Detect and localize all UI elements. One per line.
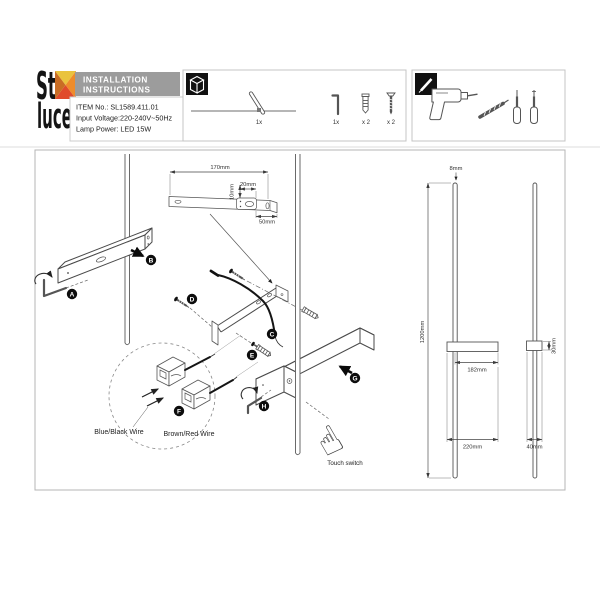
wall-lamp-rod-main xyxy=(296,154,301,455)
svg-text:D: D xyxy=(190,296,195,303)
wall-anchor-part-icon xyxy=(362,94,369,113)
step-marker-h: H xyxy=(259,401,269,411)
touch-switch-label: Touch switch xyxy=(327,460,363,467)
step-marker-c: C xyxy=(267,329,277,339)
header-line2: INSTRUCTIONS xyxy=(83,86,150,95)
svg-text:E: E xyxy=(250,352,255,359)
included-parts-box: 1x 1x x 2 x 2 xyxy=(183,70,406,141)
dim-40mm: 40mm xyxy=(526,445,542,451)
dim-20mm: 20mm xyxy=(240,182,256,188)
dim-50mm: 50mm xyxy=(259,220,275,226)
title-block: INSTALLATION INSTRUCTIONS ITEM No.: SL15… xyxy=(70,72,186,141)
dim-182mm: 182mm xyxy=(467,368,487,374)
item-number: ITEM No.: SL1589.411.01 xyxy=(76,103,159,112)
step-marker-a: A xyxy=(67,289,77,299)
lamp-power: Lamp Power: LED 15W xyxy=(76,125,151,134)
screw-qty: x 2 xyxy=(387,120,396,126)
fixture-qty: 1x xyxy=(256,120,262,126)
instruction-sheet: St luce INSTALLATION INSTRUCTIONS ITEM N… xyxy=(0,0,600,600)
svg-text:F: F xyxy=(177,408,181,415)
arm-side-view xyxy=(527,341,543,351)
sheet-graphics: St luce INSTALLATION INSTRUCTIONS ITEM N… xyxy=(0,0,600,600)
svg-text:G: G xyxy=(352,375,357,382)
dim-220mm: 220mm xyxy=(463,445,483,451)
svg-text:C: C xyxy=(270,331,275,338)
rod-side-view xyxy=(533,183,537,478)
step-marker-b: B xyxy=(146,255,156,265)
dim-1200mm: 1200mm xyxy=(420,321,426,344)
rod-front-view xyxy=(453,183,457,478)
svg-text:H: H xyxy=(262,403,267,410)
brown-wire-label: Brown/Red Wire xyxy=(164,431,215,438)
anchor-qty: x 2 xyxy=(362,120,371,126)
dim-10mm: 10mm xyxy=(230,184,236,200)
arm-front-view xyxy=(447,342,498,352)
step-marker-f: F xyxy=(174,406,184,416)
blue-wire-label: Blue/Black Wire xyxy=(94,429,144,436)
dim-170mm: 170mm xyxy=(210,165,230,171)
dim-30mm: 30mm xyxy=(552,338,558,354)
step-marker-d: D xyxy=(187,294,197,304)
required-tools-box xyxy=(412,70,565,141)
svg-text:A: A xyxy=(70,291,75,298)
step-marker-g: G xyxy=(350,373,360,383)
input-voltage: Input Voltage:220-240V~50Hz xyxy=(76,114,173,123)
dim-8mm: 8mm xyxy=(450,166,463,172)
logo-word-bottom: luce xyxy=(37,97,72,137)
logo-square-icon xyxy=(55,71,76,99)
svg-text:B: B xyxy=(149,257,154,264)
allen-key-qty: 1x xyxy=(333,120,339,126)
header-line1: INSTALLATION xyxy=(83,76,148,85)
step-marker-e: E xyxy=(247,350,257,360)
